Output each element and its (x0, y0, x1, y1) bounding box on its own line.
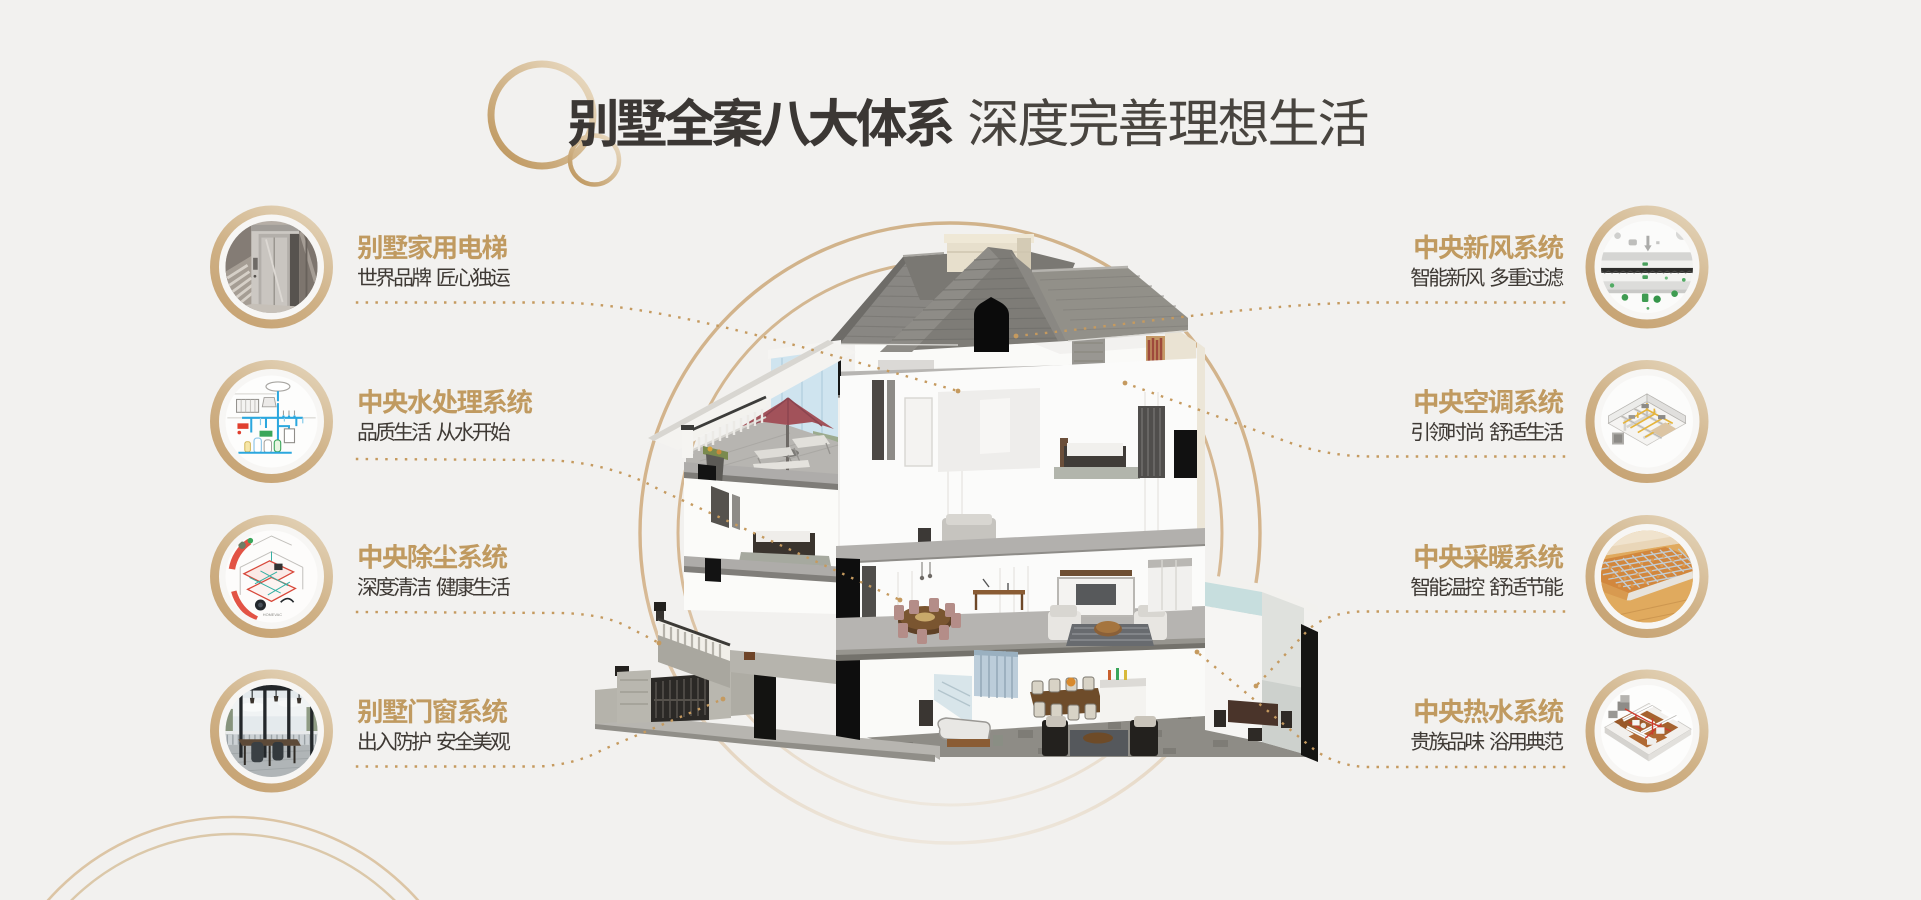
svg-text:HOMEVAC: HOMEVAC (263, 613, 282, 617)
